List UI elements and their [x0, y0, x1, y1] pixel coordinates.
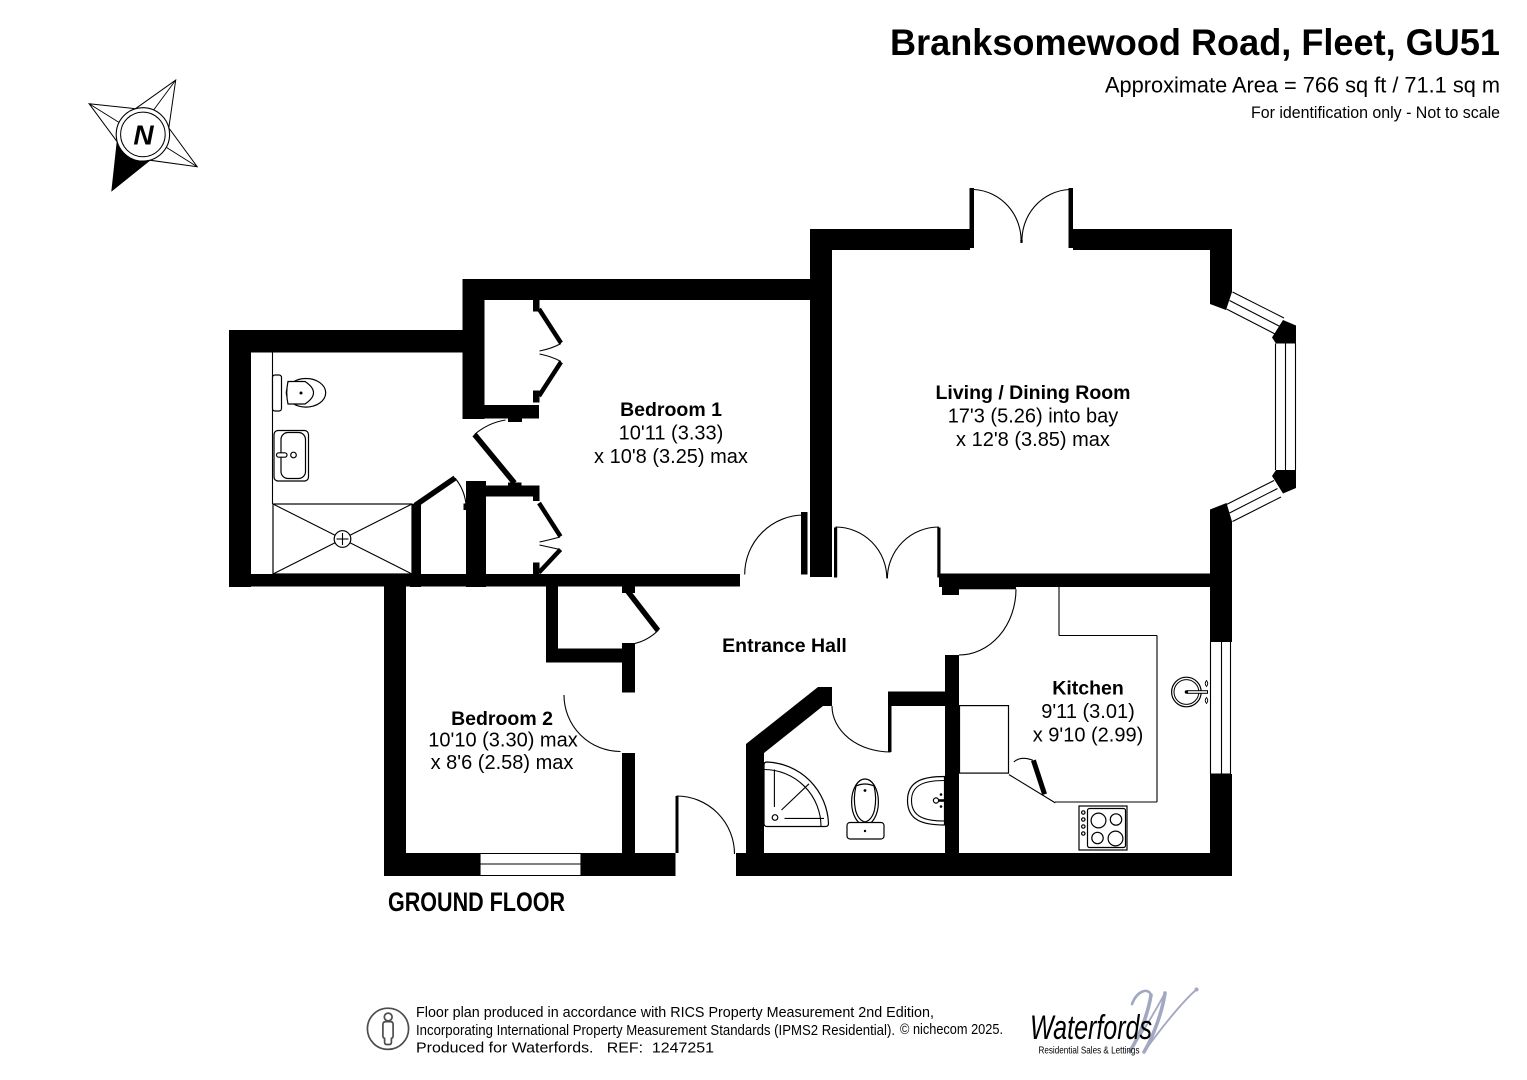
svg-text:x 8'6 (2.58) max: x 8'6 (2.58) max — [431, 752, 574, 774]
svg-text:Waterfords: Waterfords — [1030, 1009, 1152, 1047]
svg-text:GROUND FLOOR: GROUND FLOOR — [388, 887, 565, 917]
svg-text:Bedroom 2: Bedroom 2 — [451, 708, 553, 730]
svg-text:Approximate Area = 766 sq ft /: Approximate Area = 766 sq ft / 71.1 sq m — [1105, 73, 1500, 98]
svg-text:Branksomewood Road, Fleet, GU5: Branksomewood Road, Fleet, GU51 — [890, 21, 1500, 63]
svg-text:x 10'8 (3.25) max: x 10'8 (3.25) max — [594, 446, 748, 468]
svg-text:Floor plan produced in accorda: Floor plan produced in accordance with R… — [416, 1005, 934, 1021]
svg-text:Entrance Hall: Entrance Hall — [722, 635, 847, 657]
svg-text:N: N — [133, 120, 154, 151]
svg-text:Kitchen: Kitchen — [1052, 678, 1124, 700]
svg-text:10'11 (3.33): 10'11 (3.33) — [619, 422, 724, 444]
svg-text:17'3 (5.26) into bay: 17'3 (5.26) into bay — [948, 405, 1119, 427]
svg-text:x 9'10 (2.99): x 9'10 (2.99) — [1033, 725, 1144, 747]
svg-text:x 12'8 (3.85) max: x 12'8 (3.85) max — [956, 429, 1110, 451]
svg-text:Incorporating International Pr: Incorporating International Property Mea… — [416, 1023, 895, 1039]
svg-text:Residential Sales & Lettings: Residential Sales & Lettings — [1039, 1045, 1140, 1057]
svg-text:Produced for Waterfords. REF: Produced for Waterfords. REF: 1247251 — [416, 1041, 714, 1057]
svg-text:© nichecom 2025.: © nichecom 2025. — [900, 1022, 1003, 1038]
svg-text:9'11 (3.01): 9'11 (3.01) — [1041, 701, 1135, 723]
svg-text:Living / Dining Room: Living / Dining Room — [936, 382, 1131, 404]
svg-text:Bedroom 1: Bedroom 1 — [620, 399, 722, 421]
svg-text:For identification only - Not: For identification only - Not to scale — [1251, 103, 1500, 122]
svg-text:10'10 (3.30) max: 10'10 (3.30) max — [428, 730, 577, 752]
